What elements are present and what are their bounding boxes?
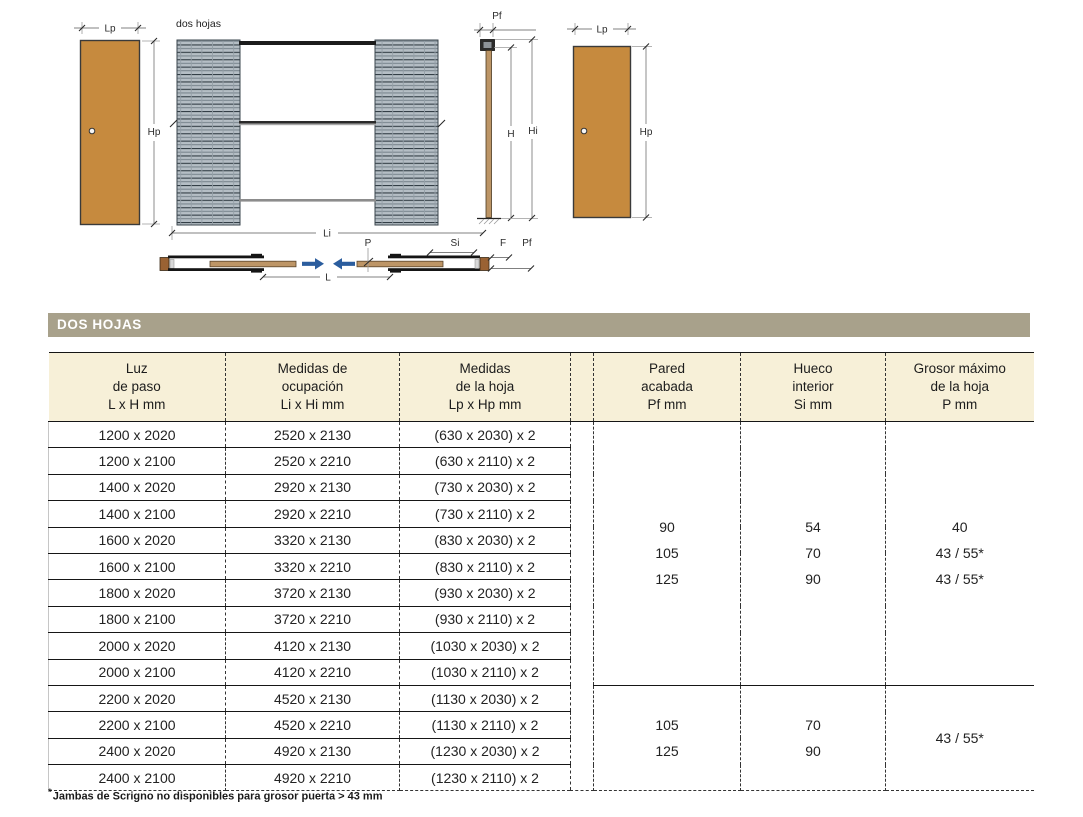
dim-label-li: Li xyxy=(323,229,331,240)
cell-luz: 1800 x 2020 xyxy=(49,580,226,606)
plan-section xyxy=(160,254,489,273)
plan-door-right xyxy=(357,261,443,267)
cell-ocupacion: 4920 x 2130 xyxy=(226,738,400,764)
header-pared-acabada: Pared acabada Pf mm xyxy=(594,353,741,422)
dim-h: H xyxy=(494,45,517,222)
section-title: DOS HOJAS xyxy=(57,317,142,332)
dim-hp-left: Hp xyxy=(142,38,161,227)
dim-li: Li xyxy=(169,226,486,240)
table-row: 2200 x 2020 4520 x 2130 (1130 x 2030) x … xyxy=(49,685,1034,711)
door-technical-diagram: Lp Hp dos hojas xyxy=(0,0,1083,300)
header-luz-de-paso: Luz de paso L x H mm xyxy=(49,353,226,422)
cell-ocupacion: 2920 x 2210 xyxy=(226,501,400,527)
arrow-left-icon xyxy=(333,258,355,269)
dim-label-hp: Hp xyxy=(148,127,161,138)
cell-luz: 2200 x 2020 xyxy=(49,685,226,711)
cell-hoja: (1030 x 2110) x 2 xyxy=(400,659,571,685)
front-door-left xyxy=(81,41,140,225)
cell-luz: 1400 x 2100 xyxy=(49,501,226,527)
cell-luz: 1200 x 2100 xyxy=(49,448,226,474)
table-header-row: Luz de paso L x H mm Medidas de ocupació… xyxy=(49,353,1034,422)
dim-si: Si xyxy=(427,238,477,256)
dim-lp-right: Lp xyxy=(567,23,636,36)
dim-f: F xyxy=(488,238,512,261)
lower-beam xyxy=(239,199,376,202)
cell-ocupacion: 2920 x 2130 xyxy=(226,474,400,500)
datasheet-page: Lp Hp dos hojas xyxy=(0,0,1083,817)
cell-luz: 2200 x 2100 xyxy=(49,712,226,738)
dimensions-table: Luz de paso L x H mm Medidas de ocupació… xyxy=(48,352,1034,791)
cell-pared-group2: 105 125 xyxy=(594,685,741,791)
footnote-text: Jambas de Scrigno no disponibles para gr… xyxy=(53,791,383,803)
cell-hoja: (730 x 2110) x 2 xyxy=(400,501,571,527)
cell-hoja: (630 x 2030) x 2 xyxy=(400,422,571,448)
header-medidas-hoja: Medidas de la hoja Lp x Hp mm xyxy=(400,353,571,422)
cell-luz: 2000 x 2100 xyxy=(49,659,226,685)
dim-hi: Hi xyxy=(495,37,538,222)
footnote-marker: * xyxy=(48,787,52,798)
cell-ocupacion: 3320 x 2130 xyxy=(226,527,400,553)
cell-hoja: (830 x 2030) x 2 xyxy=(400,527,571,553)
dim-label-pf-top: Pf xyxy=(492,11,502,22)
mid-beam xyxy=(239,121,376,124)
dim-label-lp: Lp xyxy=(596,25,608,36)
footnote: *Jambas de Scrigno no disponibles para g… xyxy=(48,787,383,803)
cell-hoja: (830 x 2110) x 2 xyxy=(400,553,571,579)
cell-hoja: (1130 x 2110) x 2 xyxy=(400,712,571,738)
top-track xyxy=(239,41,376,45)
plan-door-left xyxy=(210,261,296,267)
cell-ocupacion: 4120 x 2210 xyxy=(226,659,400,685)
dim-label-lp: Lp xyxy=(104,24,116,35)
cell-ocupacion: 3320 x 2210 xyxy=(226,553,400,579)
cell-luz: 1800 x 2100 xyxy=(49,606,226,632)
cell-hoja: (1230 x 2030) x 2 xyxy=(400,738,571,764)
cell-grosor-group1: 40 43 / 55* 43 / 55* xyxy=(886,422,1034,686)
cell-hoja: (630 x 2110) x 2 xyxy=(400,448,571,474)
diagram-title: dos hojas xyxy=(176,18,221,30)
cell-ocupacion: 4520 x 2130 xyxy=(226,685,400,711)
dim-label-hp: Hp xyxy=(640,127,653,138)
cell-pared-group1: 90 105 125 xyxy=(594,422,741,686)
cell-hoja: (1030 x 2030) x 2 xyxy=(400,633,571,659)
dim-label-pf: Pf xyxy=(522,238,532,249)
cell-luz: 1600 x 2100 xyxy=(49,553,226,579)
cell-ocupacion: 4520 x 2210 xyxy=(226,712,400,738)
cell-hoja: (930 x 2110) x 2 xyxy=(400,606,571,632)
dim-label-si: Si xyxy=(451,238,460,249)
arrow-right-icon xyxy=(302,258,324,269)
dim-l: L xyxy=(260,273,393,284)
dim-label-l: L xyxy=(325,273,331,284)
wall-section-view: Pf xyxy=(474,11,536,224)
cell-hoja: (1130 x 2030) x 2 xyxy=(400,685,571,711)
cell-luz: 2000 x 2020 xyxy=(49,633,226,659)
door-strip xyxy=(486,51,492,218)
spacer-column xyxy=(571,422,594,791)
front-door-right xyxy=(574,47,631,218)
cell-luz: 1400 x 2020 xyxy=(49,474,226,500)
dim-label-p: P xyxy=(365,238,372,249)
door-knob-icon xyxy=(89,128,95,134)
cell-hoja: (930 x 2030) x 2 xyxy=(400,580,571,606)
cell-ocupacion: 3720 x 2130 xyxy=(226,580,400,606)
header-hueco-interior: Hueco interior Si mm xyxy=(741,353,886,422)
dim-label-h: H xyxy=(507,129,514,140)
header-spacer xyxy=(571,353,594,422)
cell-ocupacion: 2520 x 2130 xyxy=(226,422,400,448)
cell-ocupacion: 3720 x 2210 xyxy=(226,606,400,632)
cell-luz: 2400 x 2020 xyxy=(49,738,226,764)
dim-label-f: F xyxy=(500,238,506,249)
dim-lp-left: Lp xyxy=(74,22,146,35)
cell-grosor-group2: 43 / 55* xyxy=(886,685,1034,791)
cell-ocupacion: 4120 x 2130 xyxy=(226,633,400,659)
cell-luz: 1600 x 2020 xyxy=(49,527,226,553)
cell-hueco-group2: 70 90 xyxy=(741,685,886,791)
header-medidas-ocupacion: Medidas de ocupación Li x Hi mm xyxy=(226,353,400,422)
section-title-bar: DOS HOJAS xyxy=(48,313,1030,337)
cell-hueco-group1: 54 70 90 xyxy=(741,422,886,686)
dim-hp-right: Hp xyxy=(632,44,653,221)
pocket-frame-front xyxy=(170,40,445,225)
cell-hoja: (1230 x 2110) x 2 xyxy=(400,765,571,791)
table-row: 1200 x 2020 2520 x 2130 (630 x 2030) x 2… xyxy=(49,422,1034,448)
dim-label-hi: Hi xyxy=(528,126,537,137)
cell-ocupacion: 2520 x 2210 xyxy=(226,448,400,474)
header-grosor-maximo: Grosor máximo de la hoja P mm xyxy=(886,353,1034,422)
cell-luz: 1200 x 2020 xyxy=(49,422,226,448)
door-knob-icon xyxy=(581,128,587,134)
cell-hoja: (730 x 2030) x 2 xyxy=(400,474,571,500)
